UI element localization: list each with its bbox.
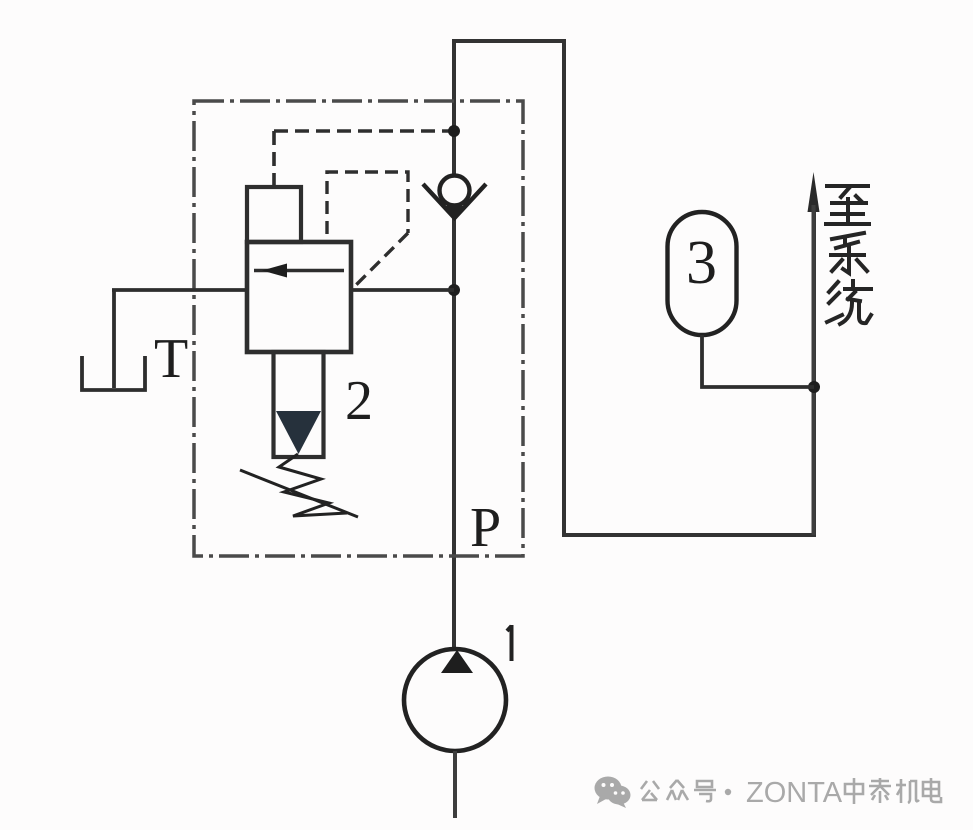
- svg-text:T: T: [154, 328, 188, 390]
- svg-text:P: P: [470, 497, 501, 559]
- svg-text:2: 2: [345, 370, 373, 432]
- svg-text:ZONTA: ZONTA: [746, 777, 843, 809]
- svg-text:3: 3: [686, 229, 717, 297]
